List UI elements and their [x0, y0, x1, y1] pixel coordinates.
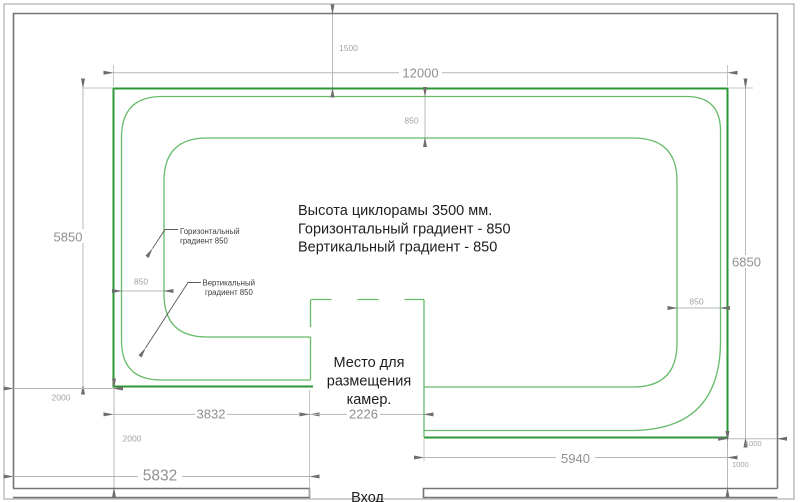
dim-overall-width: 12000	[114, 65, 728, 81]
dim-margin-bottom: 2000	[114, 389, 142, 488]
dim-gap-bottom-value: 1000	[732, 460, 749, 469]
info-note: Высота циклорамы 3500 мм. Горизонтальный…	[298, 203, 511, 256]
dim-margin-left-value: 2000	[52, 393, 71, 403]
camera-note: Место для размещения камер.	[327, 355, 411, 408]
wall-bottom-right-segment	[424, 489, 778, 498]
dim-bottom-left-width: 3832	[114, 407, 310, 422]
drawing-canvas: 1500 12000 5850 6850 850 850 850 2000 20…	[0, 0, 800, 502]
dim-bottom-left-width-value: 3832	[197, 407, 226, 422]
dim-entrance-offset: 5832	[14, 466, 310, 485]
cyclorama-floor-plan: 1500 12000 5850 6850 850 850 850 2000 20…	[0, 0, 800, 502]
dim-bottom-right-width-value: 5940	[561, 451, 590, 466]
callout-vertical-gradient-line1: Вертикальный	[203, 279, 255, 288]
dim-ceiling-offset: 1500	[333, 15, 359, 88]
camera-note-line3: камер.	[347, 392, 392, 408]
floor-gradient-line	[164, 138, 677, 387]
dim-niche-width-value: 2226	[349, 407, 378, 422]
dim-gradient-left: 850	[122, 277, 164, 292]
callout-vertical-gradient-line2: градиент 850	[205, 288, 253, 297]
dim-margin-bottom-value: 2000	[123, 434, 142, 444]
dim-gap-right-value: 1000	[745, 439, 762, 448]
dim-niche-width: 2226	[310, 407, 424, 422]
dim-margin-left: 2000	[14, 389, 114, 403]
dim-overall-width-value: 12000	[402, 66, 438, 81]
info-note-line3: Вертикальный градиент - 850	[298, 240, 497, 256]
entrance-label: Вход	[351, 490, 384, 502]
wall-bottom-left-segment	[13, 489, 310, 498]
info-note-line2: Горизонтальный градиент - 850	[298, 222, 511, 238]
dim-gradient-top: 850	[404, 97, 425, 137]
camera-note-line2: размещения	[327, 374, 411, 390]
dim-bottom-right-width: 5940	[424, 451, 728, 466]
dim-gradient-right-value: 850	[689, 297, 703, 307]
dim-gradient-top-value: 850	[404, 116, 418, 126]
dim-gap-right: 1000	[728, 439, 777, 448]
cyclorama-wall-inner-face	[122, 97, 721, 431]
dim-right-height: 6850	[731, 89, 762, 438]
dim-ceiling-offset-value: 1500	[339, 43, 358, 53]
dim-right-height-value: 6850	[732, 255, 761, 270]
dim-left-height-value: 5850	[54, 230, 83, 245]
camera-note-line1: Место для	[334, 355, 405, 371]
dim-gradient-left-value: 850	[134, 277, 148, 287]
info-note-line1: Высота циклорамы 3500 мм.	[298, 203, 492, 219]
callout-horizontal-gradient-line2: градиент 850	[180, 237, 228, 246]
entrance-label-group: Вход	[351, 490, 384, 502]
extension-lines	[83, 65, 753, 497]
dim-left-height: 5850	[52, 89, 84, 385]
dim-gradient-right: 850	[678, 297, 721, 309]
dim-entrance-offset-value: 5832	[143, 468, 177, 485]
cyclorama-outer-wall	[114, 89, 728, 438]
callout-horizontal-gradient: Горизонтальный градиент 850	[153, 227, 240, 249]
callout-horizontal-gradient-line1: Горизонтальный	[180, 227, 240, 236]
